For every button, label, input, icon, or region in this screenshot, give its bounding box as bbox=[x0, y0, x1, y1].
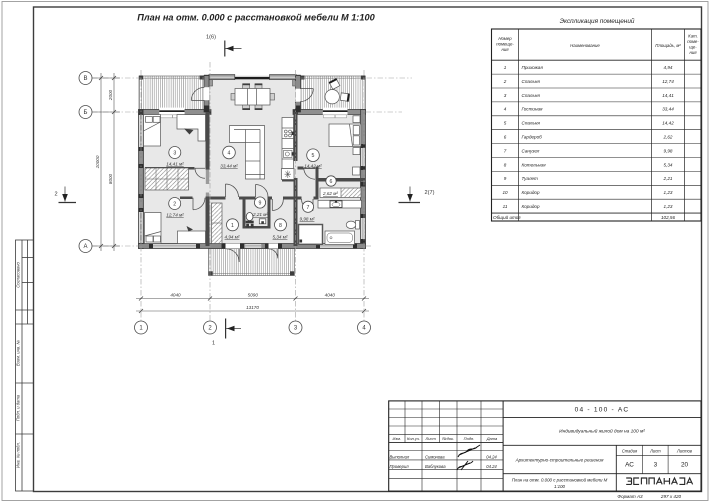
svg-text:Кат.: Кат. bbox=[688, 34, 698, 39]
svg-text:А: А bbox=[83, 244, 87, 250]
svg-text:Экспликация помещений: Экспликация помещений bbox=[560, 17, 635, 25]
svg-text:Наименование: Наименование bbox=[570, 43, 600, 48]
svg-text:1: 1 bbox=[212, 341, 215, 347]
svg-text:102,56: 102,56 bbox=[661, 215, 675, 220]
svg-text:Коридор: Коридор bbox=[522, 190, 540, 195]
svg-text:Лист: Лист bbox=[649, 449, 661, 454]
svg-text:Ваблукова: Ваблукова bbox=[425, 464, 446, 469]
svg-text:9,98: 9,98 bbox=[664, 148, 673, 153]
svg-text:2,21: 2,21 bbox=[663, 176, 673, 181]
svg-text:Санузел: Санузел bbox=[522, 148, 540, 153]
svg-text:14,41 м²: 14,41 м² bbox=[166, 162, 184, 167]
svg-text:АС: АС bbox=[625, 462, 634, 469]
svg-text:4,94 м²: 4,94 м² bbox=[225, 235, 240, 240]
svg-text:12,74: 12,74 bbox=[662, 79, 674, 84]
svg-text:33,44 м²: 33,44 м² bbox=[220, 164, 238, 169]
svg-text:8: 8 bbox=[279, 223, 282, 229]
svg-text:3: 3 bbox=[654, 462, 658, 469]
svg-text:5: 5 bbox=[312, 153, 315, 159]
svg-text:Индивидуальный жилой дом на 10: Индивидуальный жилой дом на 100 м² bbox=[559, 428, 645, 435]
svg-text:8: 8 bbox=[504, 162, 507, 167]
svg-text:Выполнил: Выполнил bbox=[390, 454, 410, 459]
svg-text:04.24: 04.24 bbox=[486, 454, 497, 459]
svg-text:Общий итог: Общий итог bbox=[493, 214, 521, 220]
svg-text:Гардероб: Гардероб bbox=[522, 135, 543, 140]
svg-text:2: 2 bbox=[173, 202, 176, 208]
svg-text:4,94: 4,94 bbox=[664, 65, 673, 70]
svg-text:Спальня: Спальня bbox=[522, 121, 541, 126]
svg-text:Спальня: Спальня bbox=[522, 93, 541, 98]
svg-text:помеще-: помеще- bbox=[496, 42, 514, 47]
svg-text:9: 9 bbox=[259, 201, 262, 207]
svg-text:8000: 8000 bbox=[108, 173, 113, 184]
svg-text:14,42: 14,42 bbox=[662, 121, 674, 126]
svg-text:1:100: 1:100 bbox=[554, 484, 566, 489]
svg-text:№док.: №док. bbox=[442, 436, 454, 441]
svg-text:13170: 13170 bbox=[246, 305, 259, 310]
svg-text:9: 9 bbox=[504, 176, 507, 181]
svg-text:2,21 м²: 2,21 м² bbox=[252, 212, 268, 217]
svg-text:Котельная: Котельная bbox=[522, 162, 547, 167]
svg-text:1: 1 bbox=[231, 223, 234, 229]
svg-text:10: 10 bbox=[502, 190, 508, 195]
svg-text:Архитектурно-строительные реше: Архитектурно-строительные решения bbox=[515, 458, 604, 463]
svg-text:Номер: Номер bbox=[498, 36, 512, 41]
svg-text:ще-: ще- bbox=[689, 45, 697, 50]
svg-text:5,34 м²: 5,34 м² bbox=[273, 235, 288, 240]
svg-text:Спальня: Спальня bbox=[522, 79, 541, 84]
svg-text:Гостиная: Гостиная bbox=[522, 107, 544, 112]
svg-text:3: 3 bbox=[504, 93, 507, 98]
svg-text:Согласовано: Согласовано bbox=[16, 262, 21, 288]
svg-text:5: 5 bbox=[504, 121, 507, 126]
svg-text:Дата: Дата bbox=[486, 436, 498, 441]
svg-text:3: 3 bbox=[173, 151, 176, 157]
svg-text:5,34: 5,34 bbox=[664, 162, 673, 167]
svg-text:Инв. № подл.: Инв. № подл. bbox=[16, 442, 21, 468]
svg-text:поме-: поме- bbox=[687, 39, 699, 44]
svg-text:2000: 2000 bbox=[108, 89, 113, 101]
svg-text:Стадия: Стадия bbox=[622, 449, 638, 454]
svg-text:ния: ния bbox=[689, 50, 697, 55]
svg-text:Листов: Листов bbox=[676, 449, 693, 454]
svg-text:Прихожая: Прихожая bbox=[522, 65, 544, 70]
svg-text:1,23: 1,23 bbox=[664, 190, 673, 195]
svg-text:План на отм. 0.000 с расстанов: План на отм. 0.000 с расстановкой мебели… bbox=[512, 478, 608, 483]
svg-text:2,62 м²: 2,62 м² bbox=[322, 191, 338, 196]
svg-text:4: 4 bbox=[504, 107, 507, 112]
svg-text:Коридор: Коридор bbox=[522, 204, 540, 209]
svg-text:Б: Б bbox=[84, 110, 88, 116]
svg-text:4: 4 bbox=[228, 151, 231, 157]
svg-text:2: 2 bbox=[503, 79, 507, 84]
svg-text:Кол.уч.: Кол.уч. bbox=[407, 436, 420, 441]
svg-text:9,98 м²: 9,98 м² bbox=[300, 217, 315, 222]
svg-text:14,41: 14,41 bbox=[662, 93, 674, 98]
svg-text:1: 1 bbox=[504, 65, 507, 70]
svg-text:5090: 5090 bbox=[248, 293, 259, 298]
svg-text:7: 7 bbox=[307, 205, 310, 211]
svg-text:7: 7 bbox=[504, 148, 507, 153]
svg-text:Площадь, м²: Площадь, м² bbox=[655, 43, 681, 48]
svg-text:Взам. инв. №: Взам. инв. № bbox=[16, 340, 21, 366]
svg-text:4040: 4040 bbox=[325, 293, 336, 298]
svg-text:В: В bbox=[83, 76, 87, 82]
svg-text:14,42 м²: 14,42 м² bbox=[304, 164, 322, 169]
svg-text:Формат А3: Формат А3 bbox=[617, 494, 643, 499]
svg-text:33,44: 33,44 bbox=[662, 107, 674, 112]
svg-text:Лист: Лист bbox=[425, 436, 437, 441]
svg-text:20: 20 bbox=[681, 462, 689, 469]
svg-text:1,23: 1,23 bbox=[664, 204, 673, 209]
svg-text:План на отм. 0.000 с расстанов: План на отм. 0.000 с расстановкой мебели… bbox=[137, 13, 375, 23]
svg-text:6: 6 bbox=[504, 135, 507, 140]
svg-text:04 - 100 - АС: 04 - 100 - АС bbox=[575, 407, 630, 414]
svg-text:2(7): 2(7) bbox=[425, 190, 435, 196]
svg-text:4040: 4040 bbox=[170, 293, 181, 298]
svg-text:Изм.: Изм. bbox=[393, 436, 402, 441]
svg-text:10000: 10000 bbox=[95, 155, 100, 168]
svg-text:04.24: 04.24 bbox=[486, 464, 497, 469]
svg-text:Подп.: Подп. bbox=[464, 436, 475, 441]
svg-text:Проверил: Проверил bbox=[390, 464, 410, 469]
svg-text:Подп. и дата: Подп. и дата bbox=[16, 394, 21, 421]
svg-text:ния: ния bbox=[501, 47, 509, 52]
svg-text:297 х 420: 297 х 420 bbox=[660, 494, 682, 499]
svg-text:11: 11 bbox=[503, 204, 508, 209]
svg-text:1(6): 1(6) bbox=[206, 35, 216, 41]
svg-text:2,62: 2,62 bbox=[663, 135, 673, 140]
svg-text:2: 2 bbox=[54, 192, 57, 198]
svg-text:Туалет: Туалет bbox=[522, 176, 539, 181]
svg-text:12,74 м²: 12,74 м² bbox=[166, 213, 184, 218]
svg-text:Симонова: Симонова bbox=[425, 454, 445, 459]
svg-text:6: 6 bbox=[330, 179, 333, 185]
